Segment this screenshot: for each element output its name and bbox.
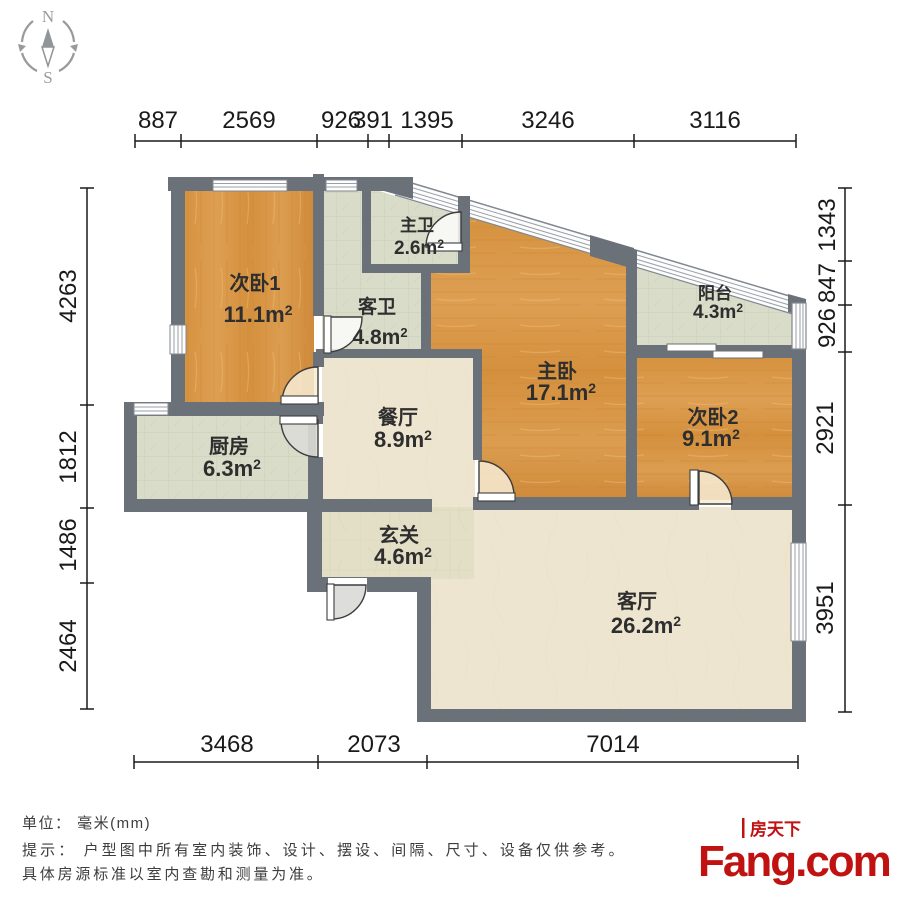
svg-text:客厅: 客厅 [616, 589, 657, 613]
svg-text:4.6m2: 4.6m2 [374, 544, 432, 569]
svg-text:391: 391 [353, 107, 393, 134]
svg-text:6.3m2: 6.3m2 [203, 456, 261, 481]
svg-text:9.1m2: 9.1m2 [682, 426, 740, 451]
svg-text:具体房源标准以室内查勘和测量为准。: 具体房源标准以室内查勘和测量为准。 [22, 866, 325, 883]
svg-text:1812: 1812 [55, 430, 82, 483]
svg-text:次卧1: 次卧1 [229, 271, 280, 295]
svg-text:客卫: 客卫 [358, 295, 396, 318]
svg-text:3246: 3246 [521, 107, 574, 134]
svg-text:2.6m2: 2.6m2 [394, 237, 444, 259]
svg-text:单位： 毫米(mm): 单位： 毫米(mm) [22, 814, 151, 832]
svg-text:厨房: 厨房 [209, 434, 249, 458]
svg-text:2921: 2921 [812, 401, 839, 454]
svg-text:7014: 7014 [586, 731, 639, 758]
svg-text:2569: 2569 [222, 107, 275, 134]
svg-text:餐厅: 餐厅 [378, 405, 418, 429]
svg-text:2073: 2073 [347, 731, 400, 758]
svg-text:926: 926 [814, 308, 841, 348]
svg-text:17.1m2: 17.1m2 [526, 380, 596, 405]
svg-text:887: 887 [138, 107, 178, 134]
svg-text:1486: 1486 [55, 518, 82, 571]
svg-text:8.9m2: 8.9m2 [374, 427, 432, 452]
svg-text:4.3m2: 4.3m2 [693, 301, 743, 323]
svg-text:847: 847 [814, 263, 841, 303]
svg-text:N: N [42, 7, 54, 26]
svg-text:阳台: 阳台 [698, 283, 732, 303]
svg-text:主卫: 主卫 [400, 215, 434, 235]
svg-text:1343: 1343 [814, 198, 841, 251]
svg-text:4263: 4263 [55, 269, 82, 322]
svg-text:3951: 3951 [812, 581, 839, 634]
svg-text:1395: 1395 [400, 107, 453, 134]
svg-text:11.1m2: 11.1m2 [224, 302, 293, 327]
svg-text:S: S [43, 68, 52, 87]
svg-text:26.2m2: 26.2m2 [611, 613, 681, 638]
svg-text:2464: 2464 [55, 619, 82, 672]
svg-text:提示： 户型图中所有室内装饰、设计、摆设、间隔、尺寸、设备仅: 提示： 户型图中所有室内装饰、设计、摆设、间隔、尺寸、设备仅供参考。 [22, 842, 627, 859]
svg-text:4.8m2: 4.8m2 [352, 325, 407, 349]
svg-text:3116: 3116 [689, 107, 741, 134]
svg-text:3468: 3468 [200, 731, 253, 758]
svg-text:Fang.com: Fang.com [698, 837, 890, 886]
svg-text:房天下: 房天下 [750, 819, 801, 839]
